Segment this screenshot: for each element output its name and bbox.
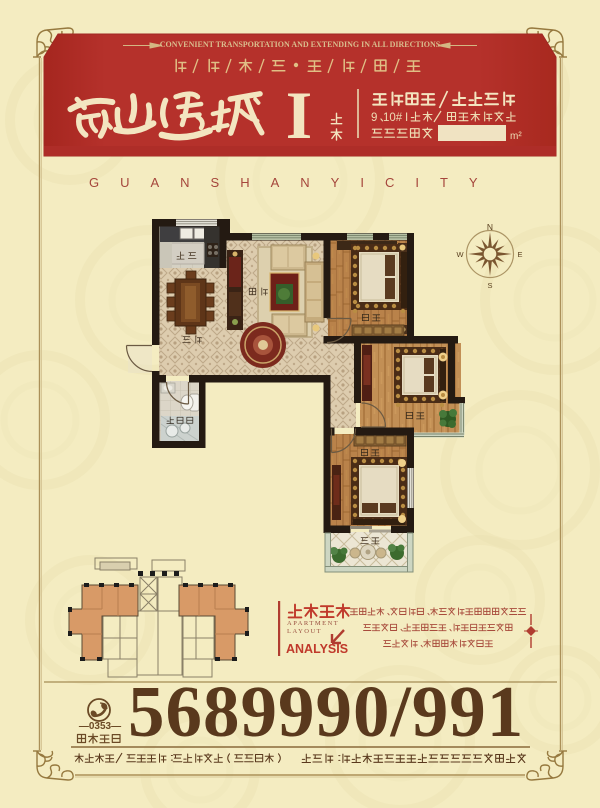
svg-text:N: N: [487, 222, 493, 232]
svg-text:10#: 10#: [383, 112, 403, 124]
svg-text:S: S: [487, 281, 492, 290]
svg-text:W: W: [456, 250, 464, 259]
svg-text:E: E: [517, 250, 522, 259]
svg-text:9: 9: [371, 112, 377, 124]
svg-text:I: I: [405, 112, 408, 124]
svg-text:m²: m²: [510, 131, 522, 142]
